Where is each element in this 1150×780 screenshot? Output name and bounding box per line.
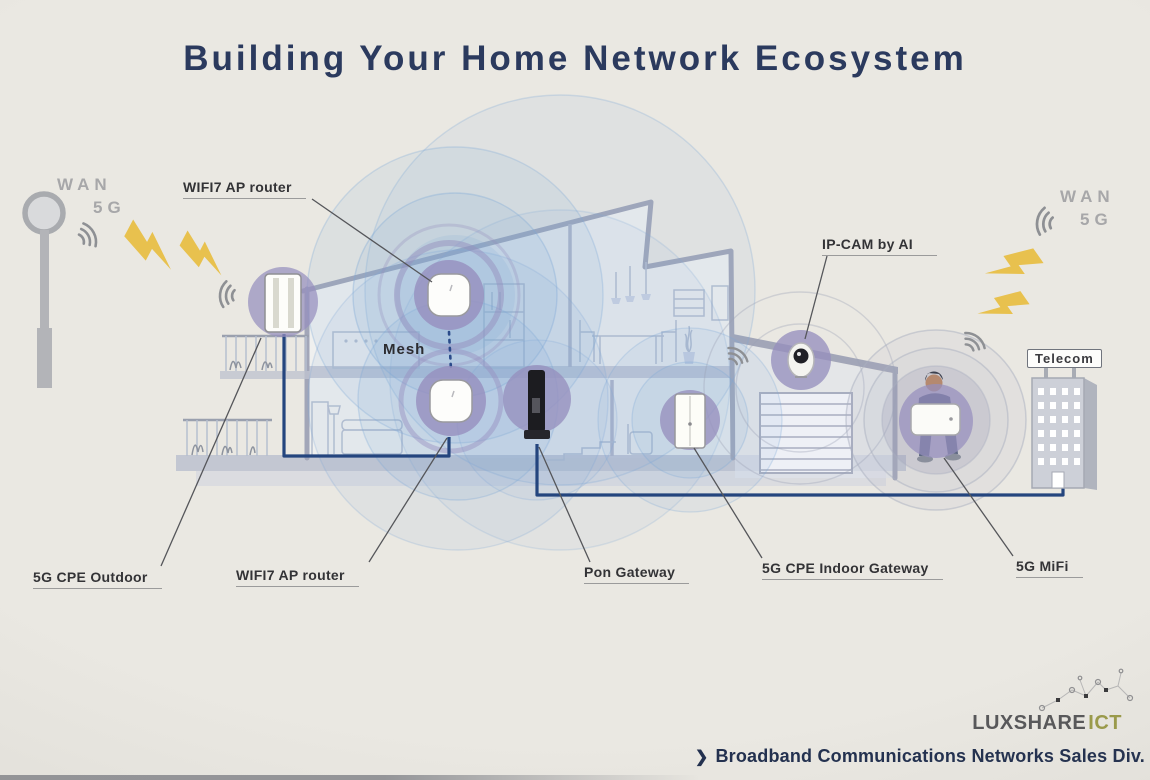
mifi-device [899,384,973,458]
page-title: Building Your Home Network Ecosystem [0,39,1150,79]
wifi7-ap-upper-device [414,260,484,330]
wifi-signal-icon [75,221,99,250]
terrace-fence [183,420,272,456]
slide: Building Your Home Network Ecosystem WAN… [0,0,1150,780]
telecom-building [1032,368,1097,490]
callout-cpe-indoor-gateway: 5G CPE Indoor Gateway [762,561,943,580]
callout-wifi7-ap-router-top: WIFI7 AP router [183,180,306,199]
brand-logo: LUXSHAREICT [972,712,1122,735]
balcony-fence [220,336,310,379]
callout-ip-cam: IP-CAM by AI [822,237,937,256]
brand-primary: LUXSHARE [972,712,1086,734]
wifi7-ap-lower-device [416,366,486,436]
coverage-circles [307,95,1026,550]
chevron-icon: ❯ [695,749,709,766]
wan-5g-label-left: WAN 5G [57,174,126,220]
wifi-signal-icon [219,281,236,308]
cpe-indoor-gateway-device [660,390,720,450]
division-title: ❯Broadband Communications Networks Sales… [695,746,1145,767]
callout-mesh: Mesh [383,341,425,358]
callout-cpe-outdoor: 5G CPE Outdoor [33,570,162,589]
callout-wifi7-ap-router-bottom: WIFI7 AP router [236,568,359,587]
network-dots-logo [1040,669,1133,710]
wifi-signal-icon [1035,207,1054,236]
5g-tower [25,194,63,388]
ip-cam-device [771,330,831,390]
telecom-sign: Telecom [1027,349,1102,368]
photo-edge [0,775,700,780]
cpe-outdoor-device [248,267,318,337]
home-network-diagram [0,0,1150,780]
callout-pon-gateway: Pon Gateway [584,565,689,584]
brand-secondary: ICT [1088,712,1122,734]
wan-5g-label-right: WAN 5G [1060,186,1115,232]
callout-5g-mifi: 5G MiFi [1016,559,1083,578]
